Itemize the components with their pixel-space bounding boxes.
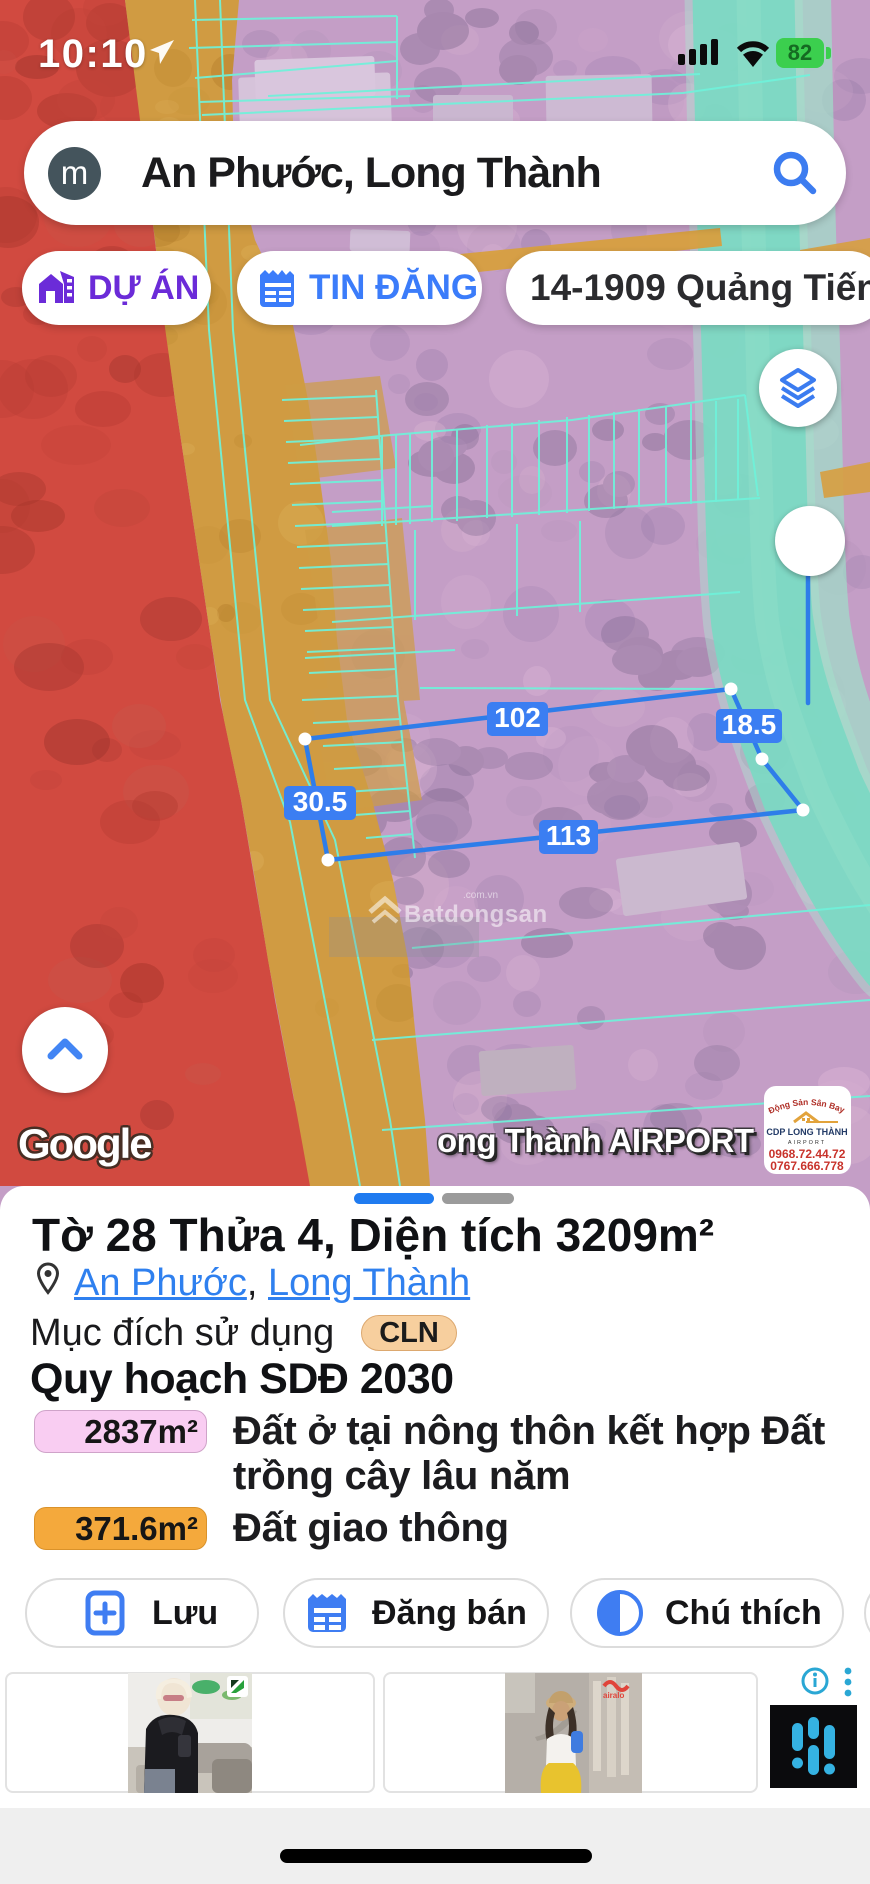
svg-text:AIRPORT: AIRPORT <box>788 1140 826 1146</box>
svg-text:113: 113 <box>546 820 591 851</box>
svg-text:Batdongsan: Batdongsan <box>404 901 548 928</box>
svg-text:CDP LONG THÀNH: CDP LONG THÀNH <box>766 1127 847 1137</box>
svg-text:.com.vn: .com.vn <box>463 890 498 901</box>
svg-text:0767.666.778: 0767.666.778 <box>770 1159 844 1173</box>
svg-text:30.5: 30.5 <box>293 786 348 817</box>
svg-text:18.5: 18.5 <box>722 709 777 740</box>
svg-text:102: 102 <box>494 702 541 733</box>
svg-text:airalo: airalo <box>603 1691 624 1700</box>
